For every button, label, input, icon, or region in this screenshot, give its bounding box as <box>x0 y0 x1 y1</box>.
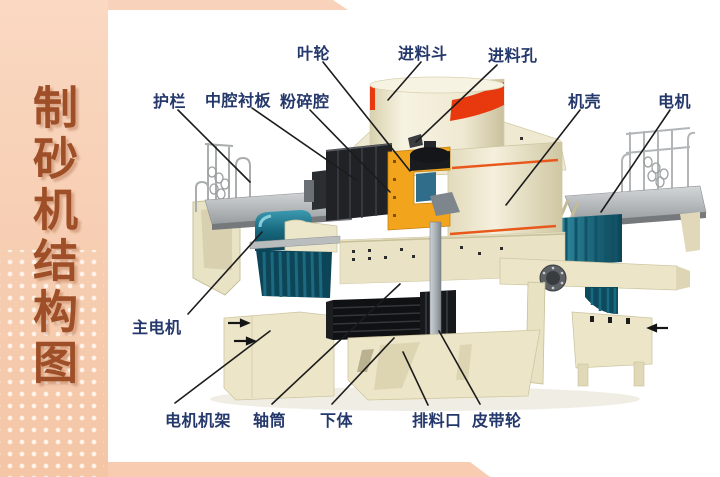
label-lower-body: 下体 <box>320 407 353 431</box>
label-belt-pulley: 皮带轮 <box>472 407 522 431</box>
label-feed-hole: 进料孔 <box>488 42 538 66</box>
label-motor-frame: 电机机架 <box>165 407 231 431</box>
label-discharge-port: 排料口 <box>412 407 462 431</box>
label-casing: 机壳 <box>568 88 601 112</box>
label-motor: 电机 <box>658 88 691 112</box>
label-cavity-liner: 中腔衬板 <box>205 87 271 111</box>
leader-cavity-liner <box>252 108 356 180</box>
label-shaft-tube: 轴筒 <box>253 407 286 431</box>
label-crushing-chamber: 粉碎腔 <box>280 88 330 112</box>
cavity-liner-shape <box>304 143 392 221</box>
label-impeller: 叶轮 <box>297 40 330 64</box>
label-guardrail: 护栏 <box>153 88 186 112</box>
page: { "sidebar": { "title": "制砂机结构图" }, "dia… <box>0 0 720 477</box>
label-main-motor: 主电机 <box>132 314 182 338</box>
label-feed-hopper: 进料斗 <box>398 40 448 64</box>
leader-guardrail <box>178 110 250 182</box>
sand-making-machine-diagram <box>0 0 720 477</box>
right-motor-shape <box>558 214 622 266</box>
right-platform <box>545 128 706 266</box>
machine-body <box>304 77 690 400</box>
